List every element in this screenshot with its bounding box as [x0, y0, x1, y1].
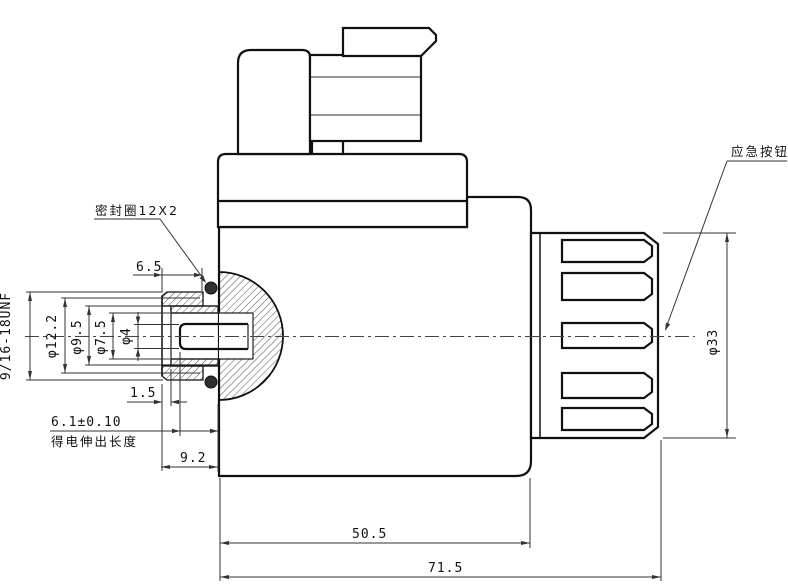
dim-dia-9-5: φ9.5 — [70, 306, 162, 365]
dim-9-2-label: 9.2 — [180, 451, 206, 466]
mounting-flange — [218, 154, 467, 227]
emergency-button-label: 应急按钮 — [731, 144, 788, 159]
cable-entry-block — [343, 28, 436, 56]
dia-33-label: φ33 — [706, 329, 721, 355]
knob-rib — [562, 323, 652, 348]
dim-dia-33: φ33 — [663, 233, 736, 438]
dia-4-label: φ4 — [119, 327, 134, 345]
o-ring-top — [205, 282, 217, 294]
emergency-knob[interactable] — [531, 233, 658, 438]
thread-spec-label: 9/16-18UNF — [0, 292, 14, 380]
dia-9-5-label: φ9.5 — [70, 319, 85, 354]
o-ring-bottom — [205, 376, 217, 388]
solenoid-valve-drawing: 9/16-18UNF φ12.2 φ9.5 φ7.5 φ4 6.5 密封圈 — [0, 0, 788, 587]
dia-7-5-label: φ7.5 — [94, 319, 109, 354]
knob-rib — [562, 273, 652, 300]
dim-50-5: 50.5 — [220, 478, 530, 581]
connector-neck — [312, 141, 343, 154]
engineering-drawing-page: 9/16-18UNF φ12.2 φ9.5 φ7.5 φ4 6.5 密封圈 — [0, 0, 788, 587]
dia-12-2-label: φ12.2 — [45, 314, 60, 358]
dim-6-5-label: 6.5 — [136, 260, 162, 275]
dim-6-1-label: 6.1±0.10 — [51, 415, 122, 430]
coil-connector-housing — [238, 50, 310, 154]
dim-1-5-label: 1.5 — [130, 386, 156, 401]
dim-1-5: 1.5 — [127, 369, 187, 471]
extension-note-label: 得电伸出长度 — [51, 434, 138, 449]
terminal-block — [310, 55, 421, 141]
knob-rib — [562, 373, 652, 398]
dim-9-2: 9.2 — [161, 451, 218, 467]
knob-rib — [562, 408, 652, 430]
seal-ring-label: 密封圈12X2 — [95, 203, 179, 218]
dim-6-5: 6.5 — [133, 260, 202, 291]
dim-50-5-label: 50.5 — [352, 527, 387, 542]
knob-rib — [562, 240, 652, 262]
dim-71-5-label: 71.5 — [428, 561, 463, 576]
